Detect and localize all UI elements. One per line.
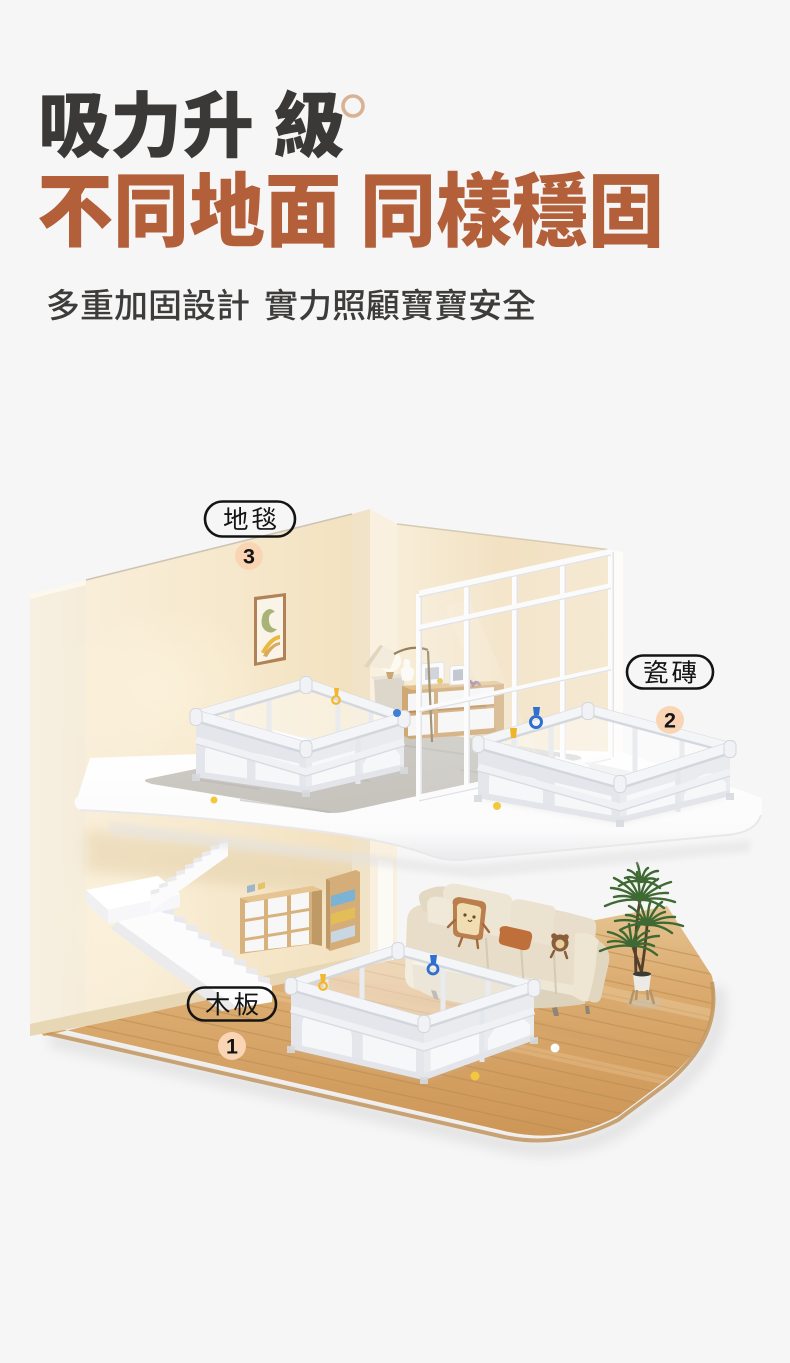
svg-text:2: 2 [664,709,676,733]
svg-text:3: 3 [243,545,255,569]
svg-text:1: 1 [226,1035,238,1059]
